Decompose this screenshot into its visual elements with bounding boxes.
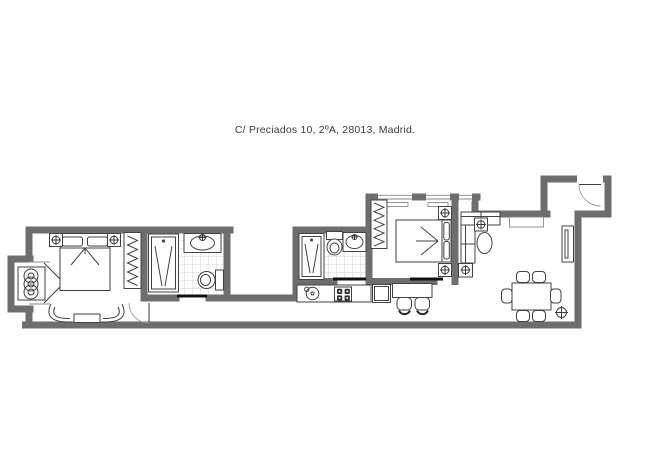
dining-chair xyxy=(533,311,546,322)
cabinet xyxy=(562,226,574,262)
floor-lamp xyxy=(459,264,473,278)
double-bed xyxy=(396,220,451,262)
nightstand-lamp xyxy=(439,264,452,277)
double-bed xyxy=(60,234,110,291)
door-swing-arc xyxy=(129,303,149,323)
wardrobe xyxy=(371,200,387,249)
shower xyxy=(149,234,179,292)
living-dining xyxy=(459,212,574,322)
toilet xyxy=(327,232,343,256)
window xyxy=(426,193,450,201)
console xyxy=(510,217,544,227)
bedroom1-door xyxy=(129,303,149,323)
floorplan-page: C/ Preciados 10, 2ºA, 28013, Madrid. xyxy=(0,0,650,450)
nightstand-lamp xyxy=(50,234,63,247)
nightstand-lamp xyxy=(108,234,121,247)
shower xyxy=(299,234,324,280)
bathroom1-sliding-door xyxy=(177,295,207,298)
nightstand-lamp xyxy=(439,207,452,220)
dining-chair xyxy=(517,272,530,283)
window-sill xyxy=(428,203,448,207)
fridge xyxy=(373,285,391,303)
window xyxy=(459,193,472,201)
kitchen xyxy=(297,284,432,315)
washbasin xyxy=(343,233,366,252)
door-swing-arc xyxy=(579,185,601,207)
dining-chair xyxy=(517,311,530,322)
armchair xyxy=(101,304,124,322)
stool xyxy=(397,298,412,315)
wardrobe xyxy=(124,233,141,289)
dining-set xyxy=(502,272,562,322)
floor-lamp-dining xyxy=(555,306,568,319)
bedroom-2 xyxy=(371,200,452,277)
armchair xyxy=(49,304,72,322)
bedroom-1 xyxy=(49,233,141,323)
entrance-door xyxy=(577,175,603,207)
washbasin xyxy=(184,234,221,253)
dining-chair xyxy=(533,272,546,283)
bathroom2-sliding-door xyxy=(333,278,366,281)
dining-table xyxy=(512,283,551,310)
bedroom2-sliding-door xyxy=(410,278,443,281)
wall-lamp xyxy=(475,218,488,231)
dining-chair xyxy=(551,289,562,303)
bar-counter xyxy=(393,284,433,298)
stool xyxy=(415,298,430,315)
floor-plan xyxy=(0,0,650,450)
bench xyxy=(74,314,100,323)
toilet xyxy=(198,270,224,290)
dining-chair xyxy=(502,289,513,303)
coffee-table xyxy=(477,233,492,254)
radiator-coils xyxy=(24,269,38,299)
balcony-recess xyxy=(18,262,64,304)
bathroom2-tiled-floor xyxy=(323,250,366,279)
